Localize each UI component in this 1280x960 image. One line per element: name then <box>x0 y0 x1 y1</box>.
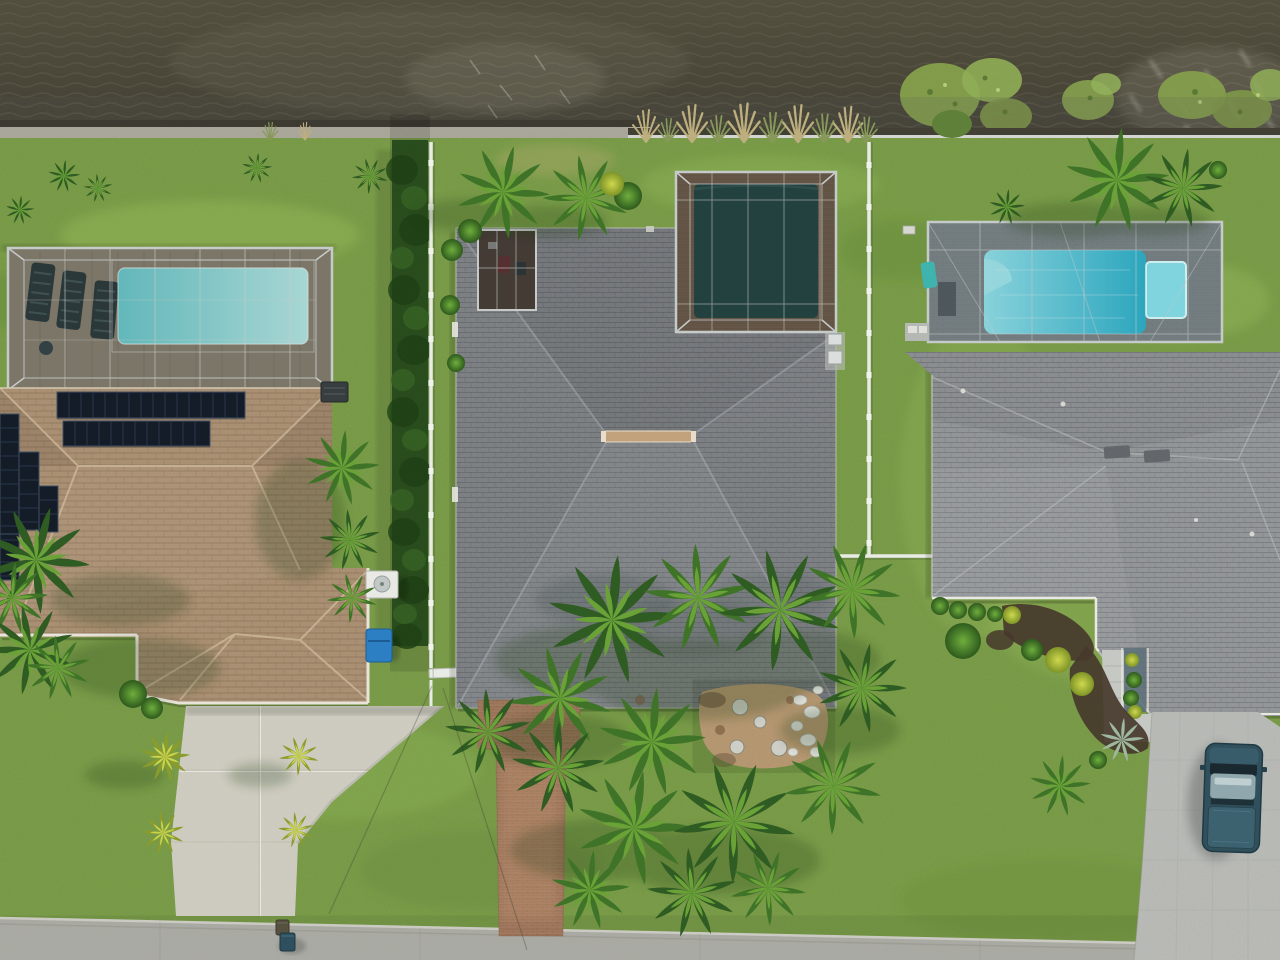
ridge-vent <box>604 431 692 442</box>
truck-hood <box>1209 747 1259 765</box>
screen-tint <box>676 172 836 332</box>
recycling-bin <box>366 629 392 662</box>
left-pool-enclosure <box>2 244 336 390</box>
center-lanai <box>478 230 536 310</box>
center-ac-units <box>825 332 845 370</box>
shore-bush <box>932 110 972 138</box>
ac-unit-dark <box>321 382 348 402</box>
right-pool-enclosure <box>920 222 1222 342</box>
house-shadow-west <box>926 356 932 598</box>
truck-cab-roof <box>1210 773 1256 800</box>
waterline-shadow <box>0 120 650 128</box>
pickup-truck[interactable] <box>1186 742 1268 861</box>
spa <box>1146 262 1186 318</box>
utility-marker <box>646 226 654 232</box>
street <box>0 918 1280 960</box>
center-pool-enclosure <box>676 172 836 332</box>
aerial-photo <box>0 0 1280 960</box>
aerial-photo-canvas <box>0 0 1280 960</box>
